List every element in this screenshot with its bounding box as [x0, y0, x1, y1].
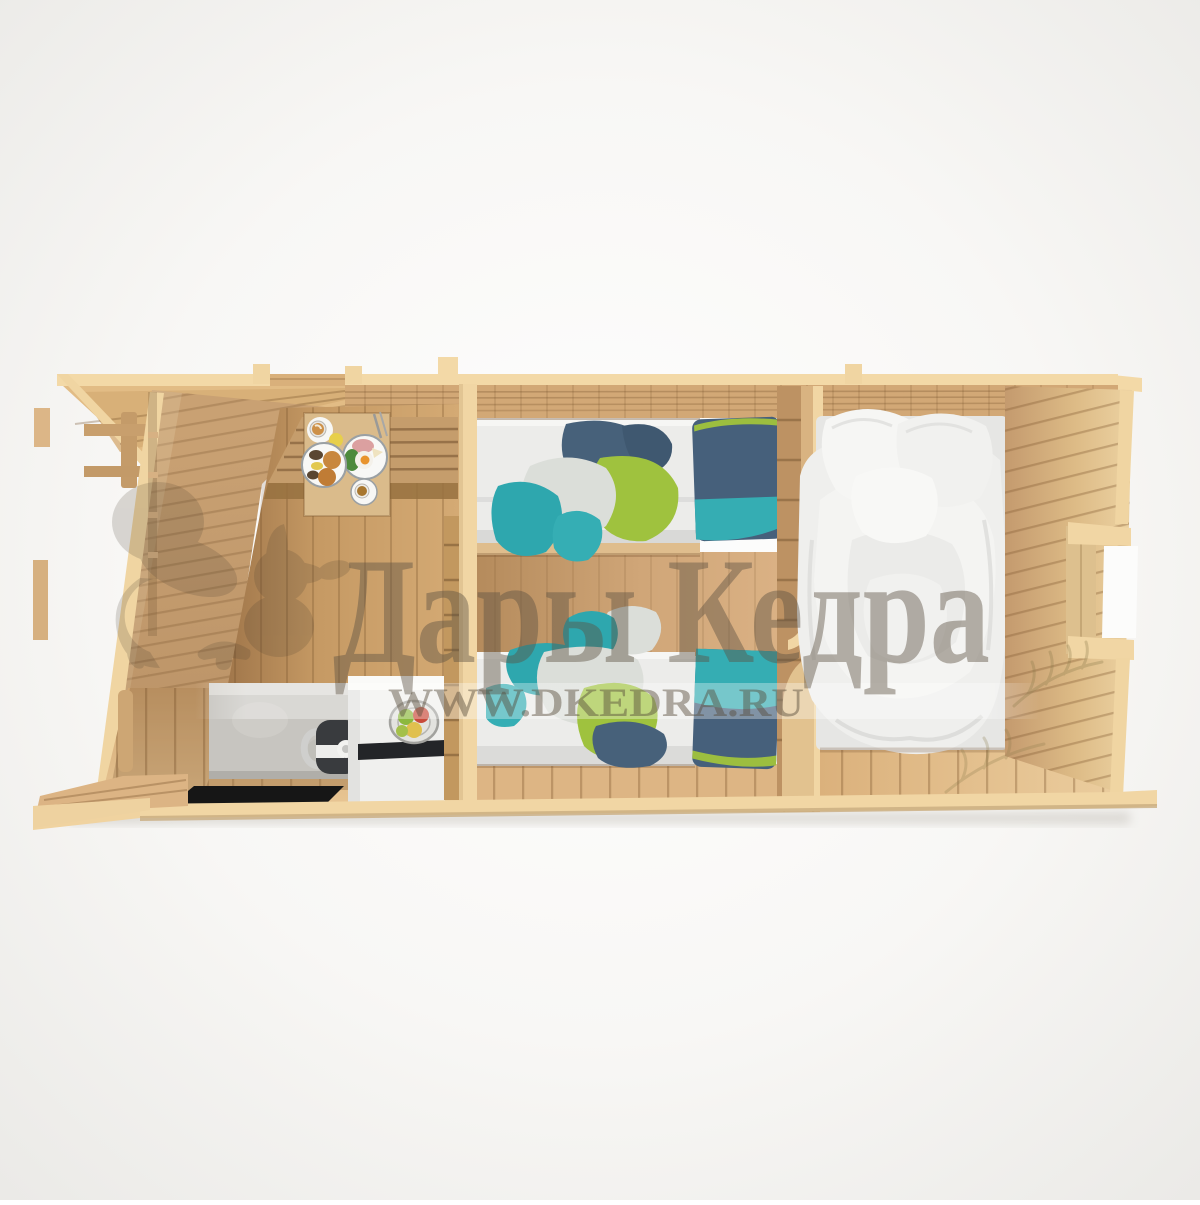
svg-text:WWW.DKEDRA.RU: WWW.DKEDRA.RU — [388, 680, 804, 725]
svg-text:Дары Кедра: Дары Кедра — [333, 527, 990, 695]
